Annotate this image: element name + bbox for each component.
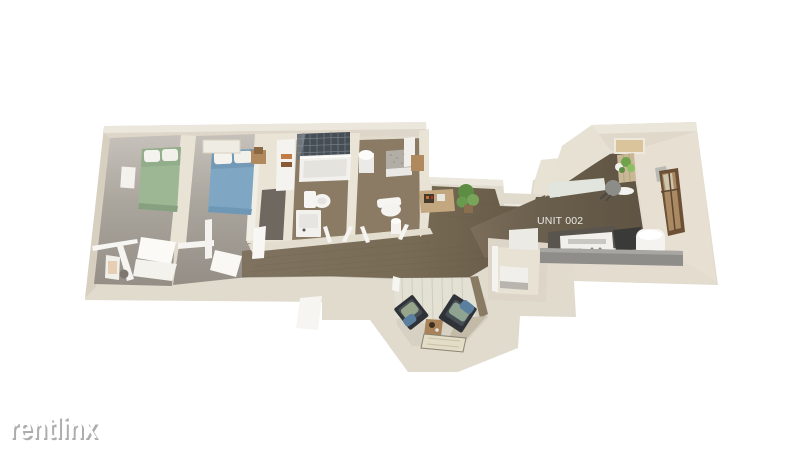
svg-text:UNIT 002: UNIT 002 (537, 215, 583, 227)
svg-text:rentlinx: rentlinx (9, 412, 97, 445)
